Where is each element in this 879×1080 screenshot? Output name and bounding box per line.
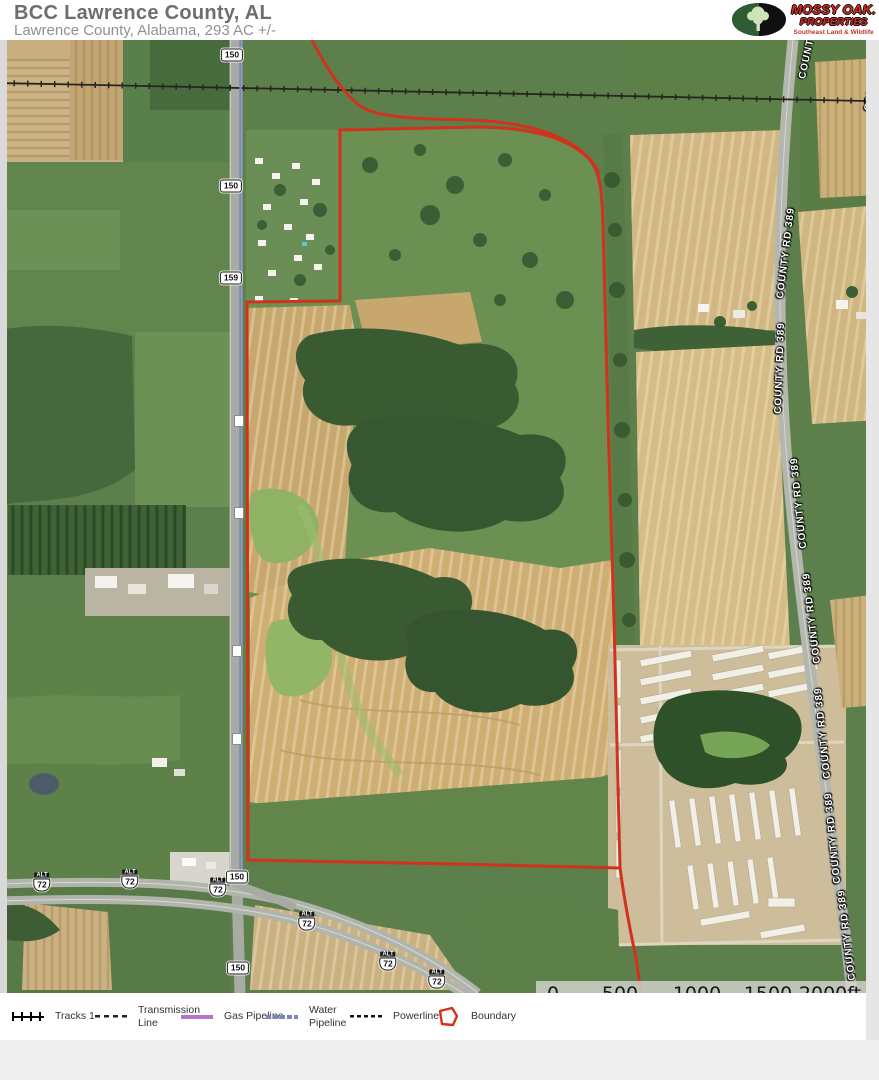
- legend-swatch-water: [266, 1010, 298, 1024]
- scale-label-1500: 1500: [744, 983, 792, 993]
- county-road-label: COUNTY RD 389: [823, 792, 844, 884]
- legend-swatch-bound: [436, 1006, 460, 1028]
- header: BCC Lawrence County, AL Lawrence County,…: [0, 0, 879, 40]
- logo-line1: MOSSY OAK.: [791, 3, 876, 16]
- alt-72-shield: ALT72: [428, 970, 445, 989]
- alt-72-shield: ALT72: [209, 878, 226, 897]
- route-shield-150: 150: [226, 871, 248, 884]
- alt-72-shield: ALT72: [298, 912, 315, 931]
- page-subtitle: Lawrence County, Alabama, 293 AC +/-: [14, 22, 276, 39]
- legend-swatch-tracks: [12, 1010, 44, 1024]
- alt-route-number: 72: [379, 958, 396, 971]
- map-annotations: 150150159150150ALT72ALT72ALT72ALT72ALT72…: [0, 40, 879, 993]
- legend-item-bound: Boundary: [436, 993, 516, 1040]
- alt-route-number: 72: [121, 876, 138, 889]
- county-road-label: COUNTY RD 389: [789, 457, 810, 549]
- small-road-marker: [232, 733, 242, 745]
- route-shield-150: 150: [221, 49, 243, 62]
- small-road-marker: [232, 645, 242, 657]
- county-road-label: COUNTY RD 389: [797, 40, 827, 80]
- legend-item-tracks: Tracks 1: [12, 993, 95, 1040]
- scale-label-0: 0: [547, 983, 559, 993]
- mossy-oak-logo: MOSSY OAK. PROPERTIES Southeast Land & W…: [730, 1, 876, 38]
- county-road-label: COUNTY RD 389: [836, 889, 858, 981]
- county-road-label: COUNTY RD 389: [775, 207, 797, 299]
- aerial-map: 150150159150150ALT72ALT72ALT72ALT72ALT72…: [0, 40, 879, 993]
- map-left-margin: [0, 40, 7, 993]
- legend-swatch-dash: [95, 1010, 127, 1024]
- legend-item-power: Powerline: [350, 993, 439, 1040]
- logo-line3: Southeast Land & Wildlife: [794, 30, 874, 37]
- map-legend: Tracks 1Transmission LineGas PipelineWat…: [0, 993, 866, 1040]
- map-right-margin: [866, 40, 879, 1080]
- legend-label: Boundary: [471, 1010, 516, 1022]
- logo-line2: PROPERTIES: [800, 17, 868, 28]
- alt-route-number: 72: [298, 918, 315, 931]
- route-shield-150: 150: [220, 180, 242, 193]
- small-road-marker: [234, 415, 244, 427]
- route-shield-159: 159: [220, 272, 242, 285]
- small-road-marker: [234, 507, 244, 519]
- route-shield-150: 150: [227, 962, 249, 975]
- scale-label-2000ft: 2000ft: [799, 983, 861, 993]
- legend-label: Powerline: [393, 1010, 439, 1022]
- alt-72-shield: ALT72: [33, 873, 50, 892]
- alt-72-shield: ALT72: [379, 952, 396, 971]
- alt-route-number: 72: [428, 976, 445, 989]
- alt-route-number: 72: [209, 884, 226, 897]
- legend-swatch-gas: [181, 1010, 213, 1024]
- scale-label-500: 500: [602, 983, 638, 993]
- county-road-label: COUNTY RD 389: [813, 687, 834, 779]
- county-road-label: COUNTY RD 389: [801, 572, 823, 664]
- footer-area: [0, 1040, 879, 1080]
- legend-swatch-power: [350, 1010, 382, 1024]
- scale-label-1000: 1000: [673, 983, 721, 993]
- scale-bar: 0500100015002000ft: [536, 981, 866, 993]
- legend-label: Tracks 1: [55, 1010, 95, 1022]
- mossy-oak-logo-icon: [730, 1, 788, 38]
- alt-72-shield: ALT72: [121, 870, 138, 889]
- property-map-page: BCC Lawrence County, AL Lawrence County,…: [0, 0, 879, 1080]
- county-road-label: COUNTY RD 389: [773, 322, 787, 414]
- alt-route-number: 72: [33, 879, 50, 892]
